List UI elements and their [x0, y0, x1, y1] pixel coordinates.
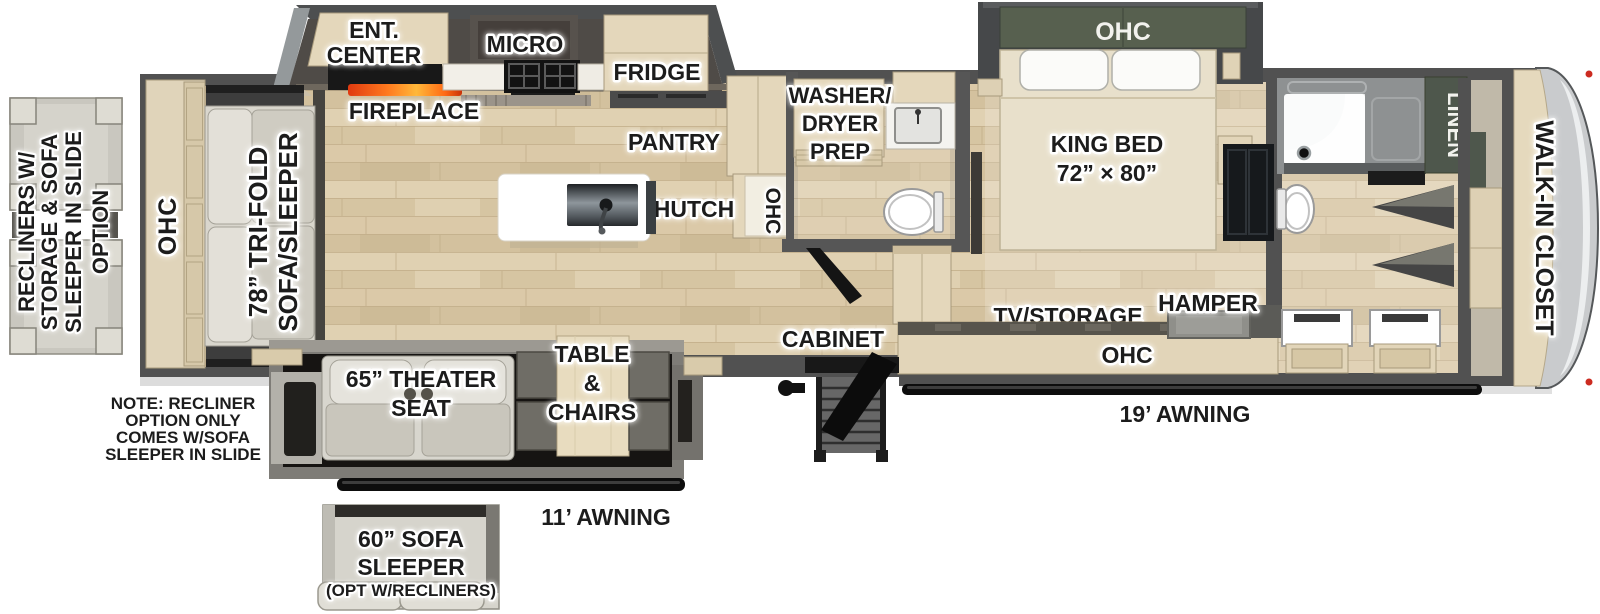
svg-text:CABINET: CABINET	[782, 326, 884, 352]
svg-text:OPTION: OPTION	[88, 190, 113, 274]
svg-text:WASHER/: WASHER/	[789, 83, 892, 108]
svg-text:SLEEPER: SLEEPER	[357, 554, 465, 580]
svg-text:SLEEPER IN SLIDE: SLEEPER IN SLIDE	[105, 445, 261, 464]
svg-text:PREP: PREP	[810, 139, 870, 164]
svg-text:CHAIRS: CHAIRS	[548, 399, 636, 425]
svg-text:ENT.: ENT.	[349, 17, 399, 43]
svg-text:&: &	[584, 370, 601, 396]
svg-text:SLEEPER IN SLIDE: SLEEPER IN SLIDE	[61, 131, 86, 333]
svg-text:RECLINERS W/: RECLINERS W/	[14, 152, 39, 312]
svg-text:OHC: OHC	[1095, 18, 1151, 46]
svg-text:78” TRI-FOLD: 78” TRI-FOLD	[243, 147, 273, 317]
svg-text:STORAGE & SOFA: STORAGE & SOFA	[37, 134, 62, 331]
svg-text:FRIDGE: FRIDGE	[614, 59, 701, 85]
svg-text:19’ AWNING: 19’ AWNING	[1120, 401, 1251, 427]
svg-text:OHC: OHC	[761, 188, 784, 235]
svg-text:CENTER: CENTER	[327, 42, 422, 68]
svg-text:OHC: OHC	[1101, 342, 1152, 368]
svg-text:FIREPLACE: FIREPLACE	[349, 98, 479, 124]
svg-text:KING BED: KING BED	[1051, 131, 1163, 157]
svg-text:(OPT W/RECLINERS): (OPT W/RECLINERS)	[326, 581, 496, 600]
svg-text:72” × 80”: 72” × 80”	[1057, 160, 1157, 186]
svg-text:11’ AWNING: 11’ AWNING	[541, 504, 671, 530]
svg-text:SOFA/SLEEPER: SOFA/SLEEPER	[273, 132, 303, 332]
svg-text:SEAT: SEAT	[391, 395, 451, 421]
svg-text:HAMPER: HAMPER	[1158, 290, 1258, 316]
svg-text:HUTCH: HUTCH	[654, 196, 735, 222]
svg-text:DRYER: DRYER	[802, 111, 878, 136]
svg-text:WALK-IN CLOSET: WALK-IN CLOSET	[1530, 120, 1558, 335]
svg-text:65” THEATER: 65” THEATER	[346, 366, 497, 392]
svg-text:60” SOFA: 60” SOFA	[358, 526, 464, 552]
svg-text:MICRO: MICRO	[487, 31, 564, 57]
svg-text:PANTRY: PANTRY	[628, 129, 720, 155]
svg-text:OHC: OHC	[154, 197, 182, 256]
svg-text:TABLE: TABLE	[555, 341, 630, 367]
